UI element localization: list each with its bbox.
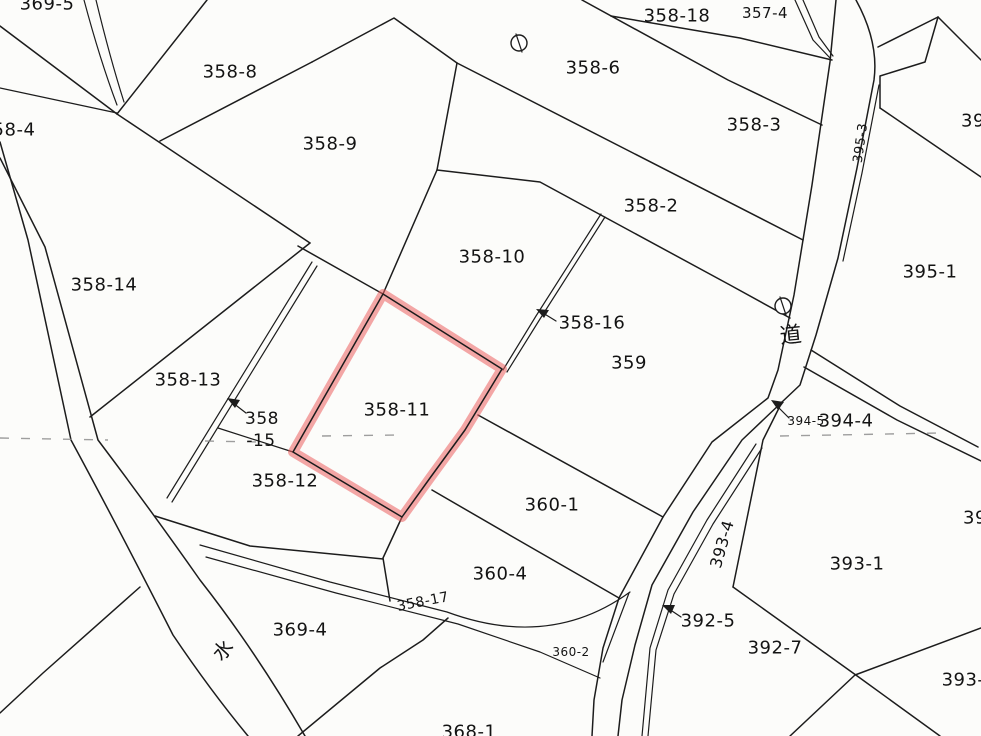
parcel-label-358-16: 358-16 bbox=[559, 313, 626, 334]
parcel-label-358-4: 358-4 bbox=[0, 120, 35, 141]
parcel-label-369-5: 369-5 bbox=[20, 0, 75, 15]
cadastral-map-canvas: 369-5 358-8 358-9 358-4 358-6 358-18 357… bbox=[0, 0, 981, 736]
road-kanji-label: 道 bbox=[778, 322, 803, 349]
parcel-label-39-ne: 39 bbox=[961, 111, 981, 132]
parcel-label-360-4: 360-4 bbox=[473, 564, 528, 585]
parcel-label-358-11: 358-11 bbox=[364, 400, 431, 421]
parcel-label-358-15-line1: 358 bbox=[245, 409, 279, 429]
parcel-label-358-18: 358-18 bbox=[644, 6, 711, 27]
parcel-label-360-2: 360-2 bbox=[552, 645, 589, 659]
parcel-label-392-7: 392-7 bbox=[748, 638, 803, 659]
arrow-392-5 bbox=[662, 605, 681, 617]
parcel-label-358-10: 358-10 bbox=[459, 247, 526, 268]
parcel-label-392-5: 392-5 bbox=[681, 611, 736, 632]
parcel-label-394-east: 39 bbox=[963, 508, 981, 529]
parcel-label-357-4: 357-4 bbox=[742, 4, 788, 22]
parcel-label-358-9: 358-9 bbox=[303, 134, 358, 155]
water-kanji-label: 水 bbox=[207, 634, 239, 665]
survey-markers bbox=[511, 34, 791, 315]
parcel-label-394-4: 394-4 bbox=[819, 411, 874, 432]
parcel-labels: 369-5 358-8 358-9 358-4 358-6 358-18 357… bbox=[0, 0, 981, 736]
parcel-label-358-6: 358-6 bbox=[566, 58, 621, 79]
parcel-boundaries bbox=[0, 0, 981, 736]
survey-marker-icon bbox=[511, 34, 527, 52]
map-drawing: 369-5 358-8 358-9 358-4 358-6 358-18 357… bbox=[0, 0, 981, 736]
parcel-label-395-1: 395-1 bbox=[903, 262, 958, 283]
survey-marker-icon bbox=[775, 297, 791, 315]
parcel-label-393-1: 393-1 bbox=[830, 554, 885, 575]
parcel-label-393-4: 393-4 bbox=[706, 518, 738, 570]
parcel-label-358-13: 358-13 bbox=[155, 370, 222, 391]
dashed-reference-line bbox=[0, 433, 940, 442]
parcel-label-395-3: 395-3 bbox=[851, 122, 871, 164]
parcel-label-358-8: 358-8 bbox=[203, 62, 258, 83]
parcel-label-369-4: 369-4 bbox=[273, 620, 328, 641]
parcel-label-358-12: 358-12 bbox=[252, 471, 319, 492]
parcel-label-368-1: 368-1 bbox=[442, 722, 497, 736]
arrow-358-16 bbox=[536, 309, 556, 321]
parcel-label-359: 359 bbox=[611, 353, 647, 374]
parcel-label-360-1: 360-1 bbox=[525, 495, 580, 516]
parcel-label-358-3: 358-3 bbox=[727, 115, 782, 136]
arrow-358-15 bbox=[227, 398, 246, 413]
parcel-label-358-15-line2: -15 bbox=[246, 431, 275, 451]
parcel-label-393-se: 393- bbox=[942, 670, 981, 691]
parcel-label-358-14: 358-14 bbox=[71, 275, 138, 296]
parcel-label-358-2: 358-2 bbox=[624, 196, 679, 217]
